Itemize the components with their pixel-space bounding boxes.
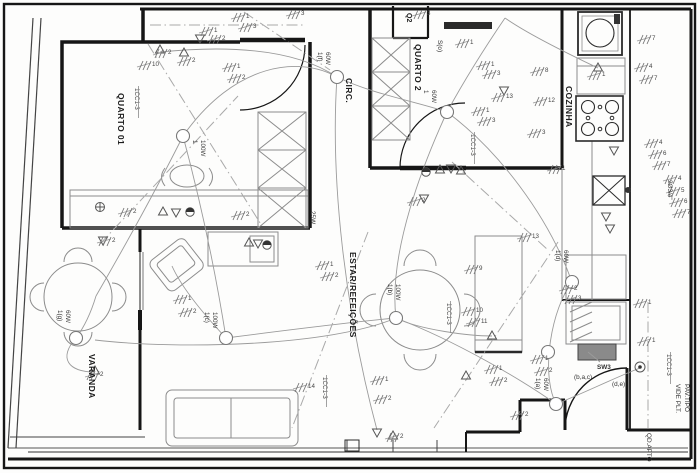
wire-count-label: 3 bbox=[427, 10, 431, 17]
circuit-ref-label: 1CC1-3 bbox=[321, 377, 328, 399]
wire-count-label: 1 bbox=[188, 295, 192, 302]
circuit-ref-label: 1CC1-3 bbox=[133, 88, 140, 110]
window-sill bbox=[444, 22, 492, 29]
outlet-icon bbox=[254, 240, 263, 248]
wire-tick bbox=[682, 209, 686, 218]
wire-count-label: 6 bbox=[663, 150, 667, 157]
light-tag: 1(b) bbox=[386, 284, 393, 295]
light-watt: 60W bbox=[562, 250, 569, 263]
faucet bbox=[625, 187, 631, 193]
appliances-layer bbox=[576, 12, 631, 360]
wire-count-label: 1 bbox=[499, 365, 503, 372]
wire-tick bbox=[544, 367, 548, 376]
wire-tick bbox=[644, 63, 648, 72]
wire-count-label: 13 bbox=[532, 233, 539, 240]
wardrobe-watt-label: 25W bbox=[309, 211, 316, 225]
electrical-floorplan-drawing: 1100W1(f)60W160W1(c)100W1(b)100W1(g)60W1… bbox=[0, 0, 700, 473]
wire-tick bbox=[543, 97, 547, 106]
wire-tick bbox=[486, 61, 490, 70]
floorplan-sheet: 1100W1(f)60W160W1(c)100W1(b)100W1(g)60W1… bbox=[0, 0, 700, 473]
wire-tick bbox=[540, 67, 544, 76]
wire-tick bbox=[232, 63, 236, 72]
wire-count-label: 3 bbox=[492, 117, 496, 124]
light-watt: 60W bbox=[64, 310, 71, 323]
light-point bbox=[550, 398, 563, 411]
distribution-board bbox=[578, 344, 616, 360]
wire-tick bbox=[471, 307, 475, 316]
wire-count-label: 2 bbox=[246, 211, 250, 218]
wire-tick bbox=[241, 13, 245, 22]
wire-tick bbox=[183, 295, 187, 304]
armchair bbox=[148, 236, 206, 293]
wire-count-label: 3 bbox=[497, 70, 501, 77]
wire-count-label: 8 bbox=[545, 67, 549, 74]
switch-keys-label-1: (b,a,c) bbox=[574, 374, 592, 381]
wire-count-label: 2 bbox=[335, 272, 339, 279]
wire-tick bbox=[501, 93, 505, 102]
wire-tick bbox=[527, 233, 531, 242]
wire-count-label: 2 bbox=[100, 371, 104, 378]
wire-count-label: 3 bbox=[301, 10, 305, 17]
wire-count-label: 13 bbox=[506, 93, 513, 100]
wire-tick bbox=[487, 117, 491, 126]
wire-count-label: 1 bbox=[652, 337, 656, 344]
wire-tick bbox=[147, 61, 151, 70]
wire-count-label: 2 bbox=[192, 57, 196, 64]
room-label-circ: CIRC. bbox=[344, 78, 354, 103]
wire-tick bbox=[540, 355, 544, 364]
wire-tick bbox=[296, 10, 300, 19]
wire-count-label: 12 bbox=[548, 97, 555, 104]
wire-tick bbox=[187, 57, 191, 66]
light-point bbox=[220, 332, 233, 345]
wire-count-label: 2 bbox=[133, 208, 137, 215]
wire-tick bbox=[241, 211, 245, 220]
light-watt: 60W bbox=[430, 90, 437, 103]
balcony-slanted-edge bbox=[8, 18, 33, 448]
outlet-icon bbox=[488, 331, 497, 339]
outlet-icon bbox=[180, 48, 189, 56]
wire-count-label: 7 bbox=[652, 35, 656, 42]
wire-tick bbox=[209, 27, 213, 36]
wire-count-label: 1 bbox=[602, 71, 606, 78]
wire-tick bbox=[537, 129, 541, 138]
wire-count-label: 1 bbox=[491, 61, 495, 68]
light-watt: 60W bbox=[324, 52, 331, 65]
counter-bar bbox=[475, 236, 522, 352]
wire-count-label: 1 bbox=[237, 63, 241, 70]
wire-tick bbox=[383, 395, 387, 404]
wire-count-label: 7 bbox=[687, 209, 691, 216]
wire-count-label: 2 bbox=[242, 74, 246, 81]
room-label-quarto2: QUARTO 2 bbox=[413, 44, 423, 91]
wire-count-label: 1 bbox=[470, 39, 474, 46]
wire-count-label: 10 bbox=[476, 307, 483, 314]
room-label-estar: ESTAR/REFEIÇÕES bbox=[348, 252, 358, 338]
desk-chair bbox=[170, 165, 204, 187]
wire-count-label: 2 bbox=[574, 285, 578, 292]
wire-count-label: 9 bbox=[479, 265, 483, 272]
wire-tick bbox=[492, 70, 496, 79]
light-point bbox=[70, 332, 83, 345]
outlet-icon bbox=[245, 238, 254, 246]
wire-count-label: 2 bbox=[168, 49, 172, 56]
wire-count-label: 2 bbox=[504, 377, 508, 384]
switch-o-label: S(o) bbox=[436, 40, 443, 52]
wire-count-label: 7 bbox=[667, 161, 671, 168]
wire-count-label: 3 bbox=[578, 295, 582, 302]
light-point bbox=[390, 312, 403, 325]
dining-chairs bbox=[360, 250, 480, 370]
wire-count-label: 1 bbox=[385, 376, 389, 383]
wire-tick bbox=[597, 71, 601, 80]
light-tag: 1(a) bbox=[534, 378, 541, 389]
light-watt: 100W bbox=[199, 140, 206, 157]
circuit-ref-label: 1CC1-3 bbox=[445, 303, 452, 325]
wire-tick bbox=[188, 308, 192, 317]
wire-tick bbox=[679, 198, 683, 207]
wire-count-label: 2 bbox=[112, 237, 116, 244]
wire-tick bbox=[481, 107, 485, 116]
wire-count-label: 2 bbox=[525, 411, 529, 418]
light-tag: 1(g) bbox=[56, 310, 63, 321]
outlet-icon bbox=[373, 429, 382, 437]
wire-tick bbox=[676, 187, 680, 196]
outlet-icon bbox=[159, 207, 168, 215]
wire-tick bbox=[647, 35, 651, 44]
closet-tag-label: Q2 bbox=[405, 13, 412, 22]
outlet-icon bbox=[606, 225, 615, 233]
wire-count-label: 1 bbox=[214, 27, 218, 34]
wire-count-label: 2 bbox=[193, 308, 197, 315]
wire-count-label: 4 bbox=[659, 139, 663, 146]
wire-count-label: 2 bbox=[222, 35, 226, 42]
wire-tick bbox=[325, 261, 329, 270]
wire-count-label: 1 bbox=[246, 13, 250, 20]
wire-count-label: 2 bbox=[388, 395, 392, 402]
light-watt: 100W bbox=[394, 284, 401, 301]
switch-keys-label-2: (d,e) bbox=[612, 381, 625, 388]
light-point bbox=[331, 71, 344, 84]
room-label-quarto01: QUARTO 01 bbox=[116, 93, 126, 145]
wire-count-label: 3 bbox=[542, 129, 546, 136]
wire-tick bbox=[465, 39, 469, 48]
wire-tick bbox=[248, 23, 252, 32]
wire-count-label: 5 bbox=[681, 187, 685, 194]
room-label-cozinha: COZINHA bbox=[564, 86, 574, 128]
switch-group-label: SW3 bbox=[597, 364, 611, 371]
wire-count-label: 2 bbox=[549, 367, 553, 374]
wire-tick bbox=[654, 139, 658, 148]
wire-tick bbox=[330, 272, 334, 281]
panel-label: QD.APTO bbox=[645, 433, 652, 462]
light-tag: 1(d) bbox=[554, 250, 561, 261]
light-point bbox=[177, 130, 190, 143]
circuit-ref-label: 1CC1-3 bbox=[469, 134, 476, 156]
wire-count-label: 4 bbox=[678, 175, 682, 182]
outlet-icon bbox=[602, 213, 611, 221]
wire-tick bbox=[380, 376, 384, 385]
wire-count-label: 10 bbox=[152, 61, 159, 68]
wire-count-label: 4 bbox=[649, 63, 653, 70]
wire-tick bbox=[107, 237, 111, 246]
wire-count-label: 11 bbox=[481, 318, 488, 325]
wire-tick bbox=[499, 377, 503, 386]
wire-count-label: 2 bbox=[422, 197, 426, 204]
light-tag: 1 bbox=[191, 140, 198, 144]
wire-tick bbox=[422, 10, 426, 19]
light-point bbox=[441, 106, 454, 119]
wire-tick bbox=[658, 150, 662, 159]
wardrobe-quarto01 bbox=[258, 112, 306, 228]
wire-count-label: 1 bbox=[648, 299, 652, 306]
wire-tick bbox=[662, 161, 666, 170]
wire-count-label: 6 bbox=[684, 198, 688, 205]
wire-tick bbox=[643, 299, 647, 308]
light-watt: 60W bbox=[542, 378, 549, 391]
light-tag: 1(c) bbox=[203, 312, 210, 323]
quarto01-door-swing bbox=[240, 45, 305, 110]
wire-tick bbox=[649, 75, 653, 84]
circuit-ref-label: 1CC1-3 bbox=[665, 354, 672, 376]
see-plan-label-2: PAV.TIPO bbox=[683, 384, 690, 412]
sheet-frame bbox=[4, 4, 695, 468]
see-plan-label-1: VIDE PLT. bbox=[674, 384, 681, 413]
outlet-icon bbox=[172, 209, 181, 217]
room-label-varanda: VARANDA bbox=[87, 354, 97, 399]
symbols-layer: 1100W1(f)60W160W1(c)100W1(b)100W1(g)60W1… bbox=[56, 10, 691, 442]
wire-tick bbox=[395, 433, 399, 442]
light-watt: 100W bbox=[211, 312, 218, 329]
wire-tick bbox=[417, 197, 421, 206]
outlet-icon bbox=[610, 147, 619, 155]
wire-count-label: 1 bbox=[562, 165, 566, 172]
conduit-label: 2Ø3/4" bbox=[666, 180, 673, 200]
wire-count-label: 2 bbox=[400, 433, 404, 440]
wire-count-label: 1 bbox=[486, 107, 490, 114]
wire-tick bbox=[128, 208, 132, 217]
wire-count-label: 1 bbox=[545, 355, 549, 362]
wire-count-label: 3 bbox=[253, 23, 257, 30]
balcony-table bbox=[44, 263, 112, 331]
kitchen-counter bbox=[577, 58, 625, 94]
wire-count-label: 7 bbox=[654, 75, 658, 82]
window-mullions bbox=[347, 440, 437, 452]
wire-count-label: 1 bbox=[330, 261, 334, 268]
wire-tick bbox=[303, 383, 307, 392]
bell-button-dot bbox=[638, 365, 642, 369]
light-tag: 1(f) bbox=[316, 52, 323, 61]
wire-count-label: 14 bbox=[308, 383, 315, 390]
